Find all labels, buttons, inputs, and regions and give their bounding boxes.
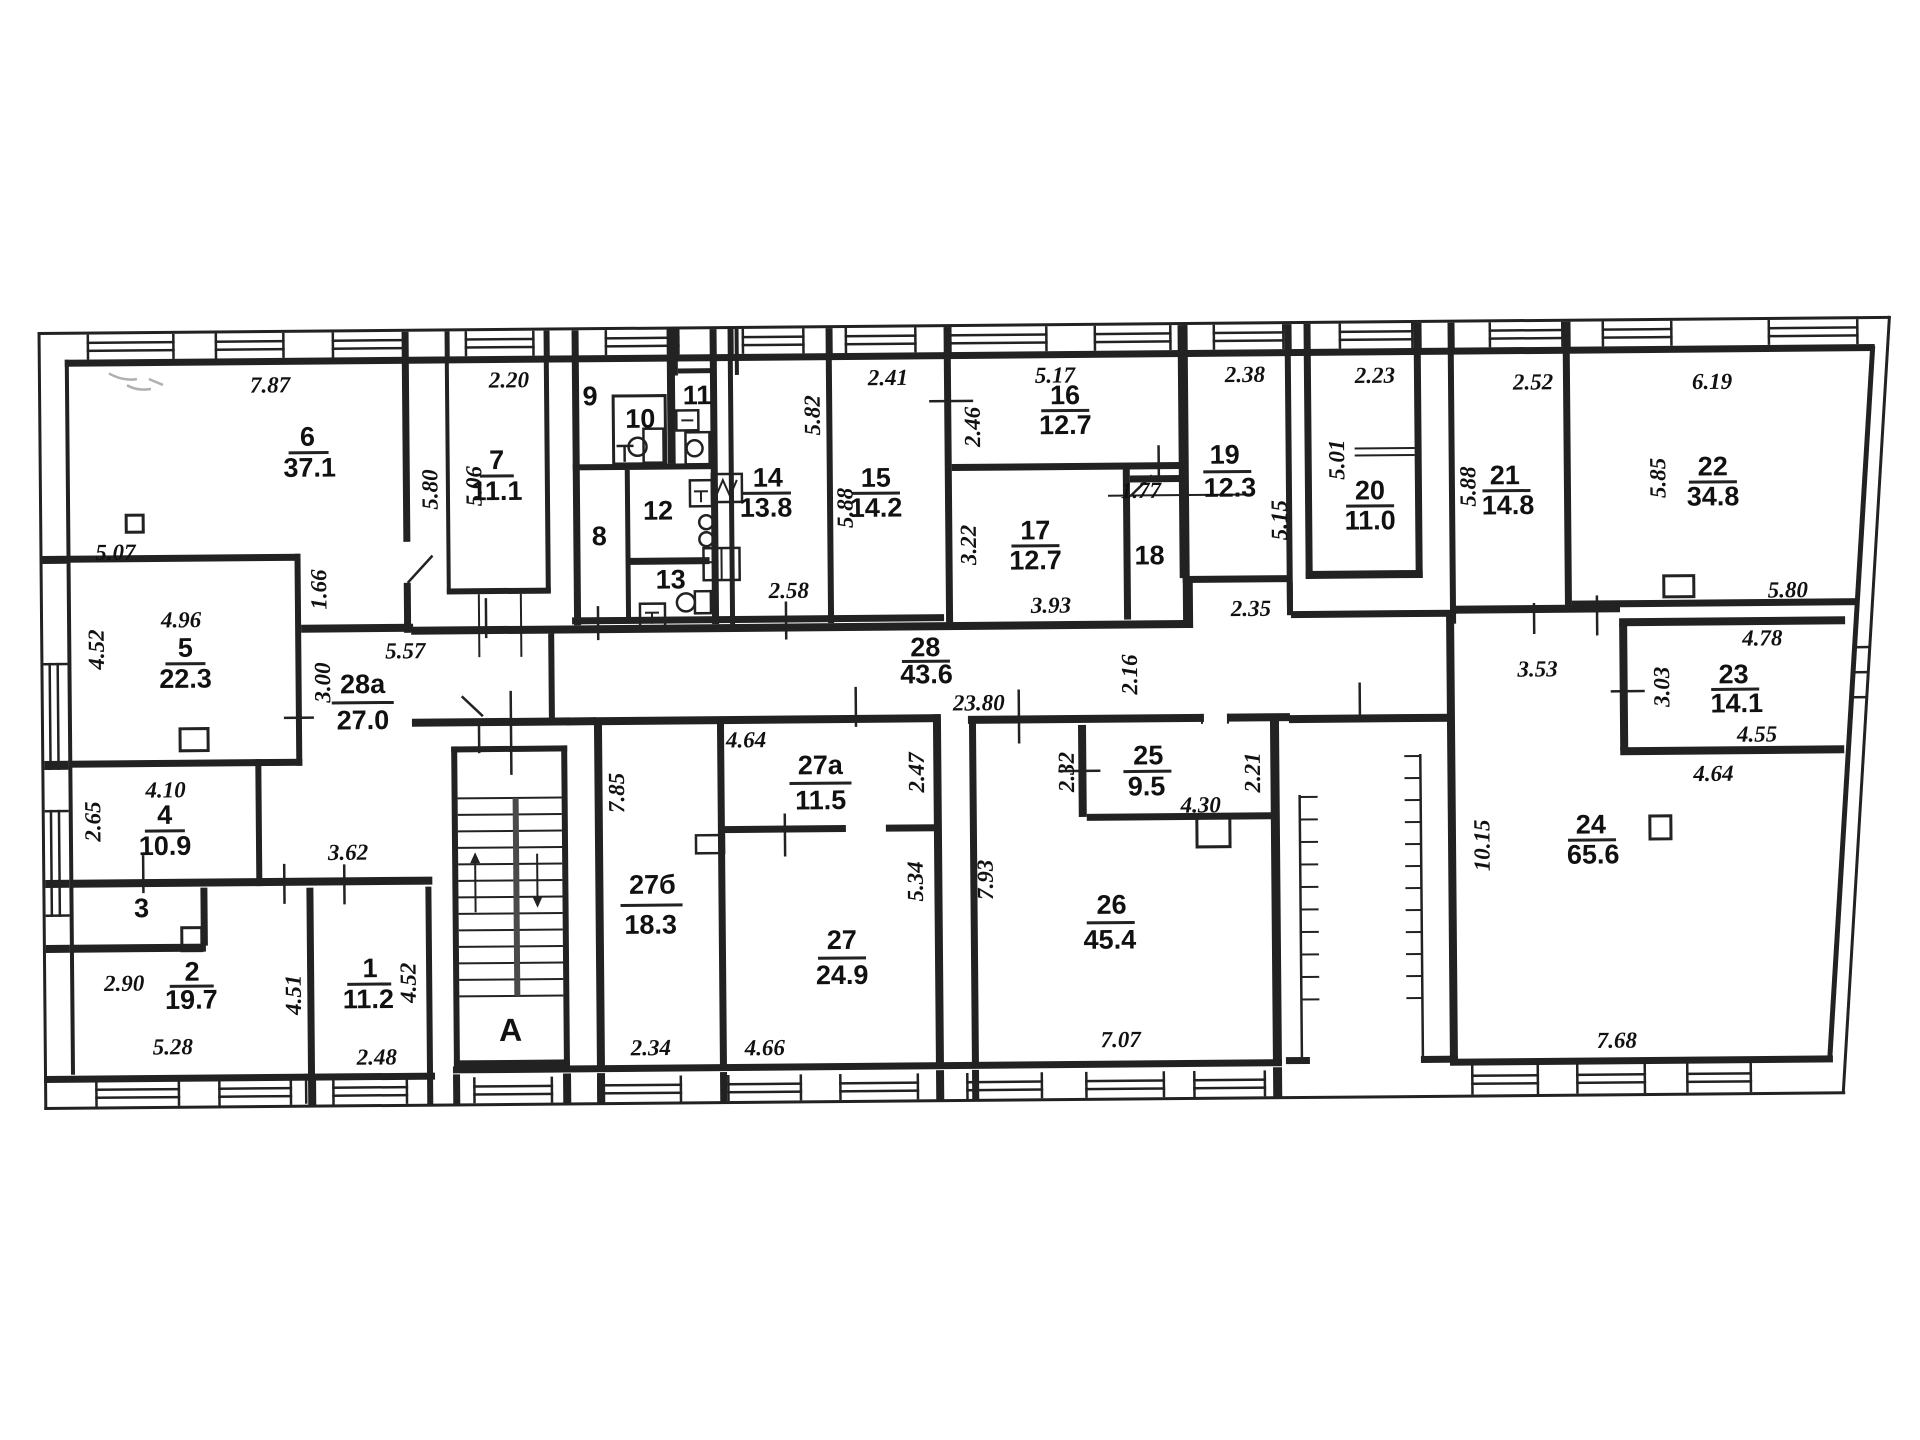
svg-text:2.46: 2.46	[960, 406, 985, 448]
svg-text:19: 19	[1209, 440, 1239, 470]
svg-text:5.88: 5.88	[832, 487, 857, 528]
svg-text:14.8: 14.8	[1482, 490, 1535, 520]
svg-text:5.17: 5.17	[1035, 362, 1077, 387]
svg-text:4.66: 4.66	[744, 1035, 786, 1060]
svg-text:11: 11	[683, 380, 712, 410]
svg-text:2.21: 2.21	[1240, 752, 1265, 793]
svg-text:3.53: 3.53	[1516, 656, 1557, 681]
svg-text:12.7: 12.7	[1039, 410, 1092, 440]
svg-text:1.77: 1.77	[1121, 478, 1163, 503]
svg-text:2.47: 2.47	[904, 751, 929, 794]
svg-text:18.3: 18.3	[624, 909, 677, 939]
svg-text:10.9: 10.9	[139, 831, 192, 861]
svg-text:5.15: 5.15	[1267, 500, 1292, 540]
svg-text:1.66: 1.66	[306, 569, 331, 610]
svg-text:24: 24	[1576, 809, 1606, 839]
svg-text:12: 12	[643, 495, 673, 525]
svg-text:2.65: 2.65	[80, 801, 105, 842]
svg-text:19.7: 19.7	[165, 984, 218, 1014]
svg-text:27: 27	[827, 925, 857, 955]
svg-text:28а: 28а	[340, 669, 386, 699]
svg-text:4.64: 4.64	[1692, 761, 1733, 786]
svg-text:3.22: 3.22	[956, 525, 981, 566]
svg-text:4.52: 4.52	[84, 629, 109, 670]
svg-text:5.34: 5.34	[903, 861, 928, 901]
svg-text:2.48: 2.48	[356, 1044, 398, 1069]
svg-text:7.85: 7.85	[604, 773, 629, 813]
svg-text:15: 15	[861, 463, 891, 493]
svg-text:4: 4	[157, 800, 172, 830]
svg-text:5.80: 5.80	[417, 469, 442, 510]
svg-text:14.1: 14.1	[1710, 688, 1763, 718]
svg-text:7.93: 7.93	[973, 860, 998, 900]
svg-text:20: 20	[1355, 475, 1385, 505]
svg-text:26: 26	[1096, 890, 1126, 920]
svg-text:27а: 27а	[798, 750, 844, 780]
svg-text:2.16: 2.16	[1117, 654, 1142, 696]
svg-text:4.55: 4.55	[1736, 721, 1777, 746]
svg-text:23: 23	[1718, 659, 1748, 689]
svg-text:17: 17	[1020, 515, 1050, 545]
svg-text:43.6: 43.6	[900, 659, 953, 689]
svg-text:24.9: 24.9	[816, 960, 869, 990]
svg-text:6: 6	[300, 422, 315, 452]
svg-text:4.78: 4.78	[1741, 625, 1783, 650]
svg-text:9.5: 9.5	[1128, 771, 1166, 801]
svg-text:7.68: 7.68	[1597, 1028, 1638, 1053]
svg-text:22.3: 22.3	[159, 664, 212, 694]
svg-text:5.80: 5.80	[1768, 577, 1809, 602]
svg-text:65.6: 65.6	[1567, 839, 1620, 869]
svg-text:27.0: 27.0	[337, 705, 390, 735]
svg-text:2.23: 2.23	[1354, 363, 1395, 388]
svg-text:3: 3	[134, 893, 149, 923]
svg-text:1: 1	[362, 953, 377, 983]
svg-text:5: 5	[178, 633, 193, 663]
svg-text:34.8: 34.8	[1687, 481, 1740, 511]
svg-text:28: 28	[910, 632, 940, 662]
svg-text:3.93: 3.93	[1030, 593, 1071, 618]
svg-text:11.2: 11.2	[343, 984, 394, 1014]
svg-text:45.4: 45.4	[1083, 924, 1136, 954]
svg-text:8: 8	[592, 521, 607, 551]
svg-text:7.87: 7.87	[250, 372, 292, 397]
svg-text:22: 22	[1698, 451, 1728, 481]
svg-text:4.52: 4.52	[396, 963, 421, 1004]
svg-text:25: 25	[1133, 740, 1163, 770]
svg-text:5.01: 5.01	[1324, 439, 1349, 479]
svg-text:14: 14	[753, 463, 783, 493]
svg-text:2.58: 2.58	[768, 578, 810, 603]
svg-text:4.30: 4.30	[1179, 792, 1221, 817]
svg-text:23.80: 23.80	[952, 690, 1005, 715]
svg-text:4.10: 4.10	[144, 777, 186, 802]
svg-text:12.7: 12.7	[1009, 545, 1062, 575]
svg-text:5.28: 5.28	[153, 1034, 194, 1059]
svg-text:4.96: 4.96	[160, 607, 202, 632]
svg-text:5.85: 5.85	[1645, 458, 1670, 498]
svg-text:9: 9	[582, 381, 597, 411]
svg-text:2.90: 2.90	[103, 971, 145, 996]
svg-text:2.20: 2.20	[488, 367, 530, 392]
svg-text:13: 13	[656, 564, 686, 594]
svg-text:5.07: 5.07	[95, 540, 137, 565]
svg-text:2.32: 2.32	[1054, 752, 1079, 793]
svg-text:2: 2	[184, 957, 199, 987]
svg-text:2.34: 2.34	[630, 1035, 671, 1060]
svg-text:7.07: 7.07	[1101, 1027, 1143, 1052]
svg-text:3.00: 3.00	[310, 662, 335, 704]
svg-text:11.5: 11.5	[795, 785, 846, 815]
svg-text:37.1: 37.1	[283, 452, 336, 482]
svg-text:5.88: 5.88	[1455, 466, 1480, 507]
svg-text:5.57: 5.57	[385, 638, 427, 663]
svg-text:2.38: 2.38	[1224, 362, 1266, 387]
svg-text:5.82: 5.82	[800, 395, 825, 435]
svg-text:2.52: 2.52	[1512, 369, 1553, 394]
svg-text:3.03: 3.03	[1649, 667, 1674, 708]
svg-text:7: 7	[489, 445, 504, 475]
svg-text:18: 18	[1134, 540, 1164, 570]
svg-text:12.3: 12.3	[1204, 472, 1257, 502]
svg-text:10.15: 10.15	[1469, 819, 1494, 871]
svg-text:А: А	[499, 1012, 522, 1048]
svg-text:27б: 27б	[629, 869, 676, 899]
svg-text:3.62: 3.62	[327, 840, 368, 865]
svg-text:4.51: 4.51	[281, 975, 306, 1016]
svg-text:11.0: 11.0	[1345, 505, 1396, 535]
svg-text:6.19: 6.19	[1692, 369, 1733, 394]
svg-text:4.64: 4.64	[725, 727, 766, 752]
svg-text:21: 21	[1490, 460, 1520, 490]
svg-text:13.8: 13.8	[740, 492, 793, 522]
svg-text:10: 10	[625, 404, 655, 434]
svg-text:2.35: 2.35	[1230, 596, 1271, 621]
svg-text:2.41: 2.41	[867, 365, 908, 390]
svg-text:5.06: 5.06	[461, 465, 486, 506]
